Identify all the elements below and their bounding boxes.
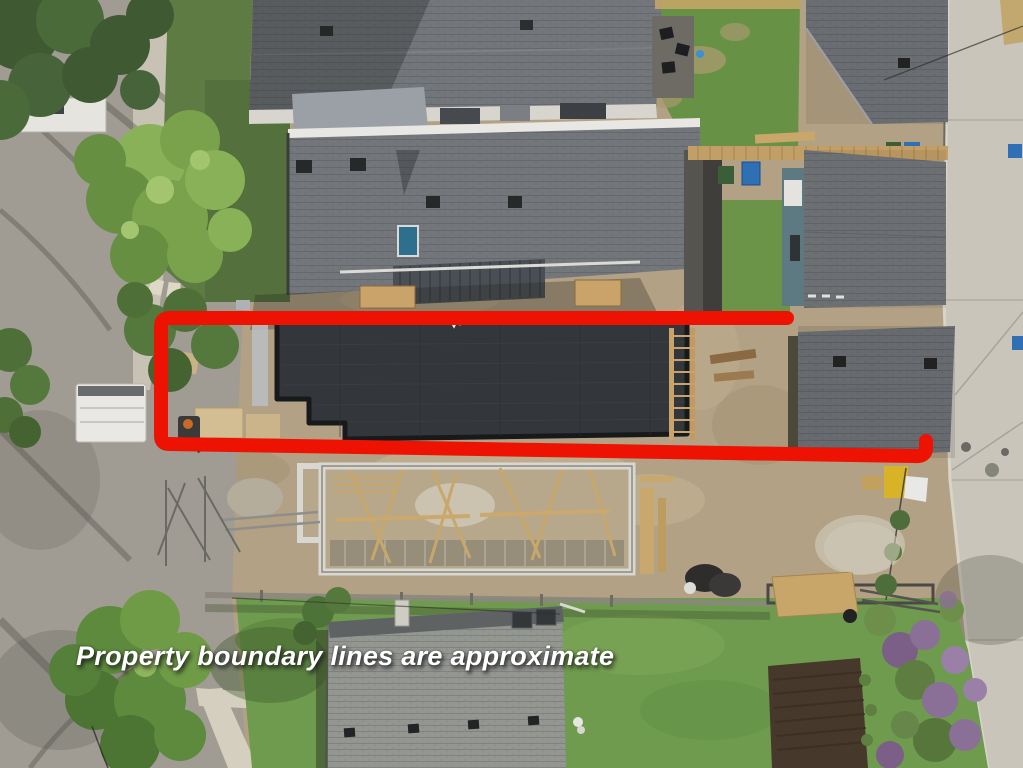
blue-bin — [742, 162, 760, 185]
house-bottom — [316, 600, 585, 768]
grass-strip-mid — [718, 200, 790, 315]
skylight — [398, 226, 418, 256]
driveway-strip — [684, 150, 722, 312]
house-top-right — [806, 0, 948, 124]
blue-bin-4 — [1012, 336, 1023, 350]
plywood-1 — [195, 408, 243, 438]
white-truck — [76, 384, 146, 442]
subject-building — [277, 318, 687, 439]
aerial-property-photo: Property boundary lines are approximate — [0, 0, 1023, 768]
rooftop-unit-1 — [512, 612, 532, 628]
house-top-left — [249, 0, 662, 131]
rooftop-unit-2 — [536, 609, 556, 625]
chimney — [395, 600, 409, 626]
fence-top-yard — [655, 0, 800, 9]
blue-bin-3 — [1008, 144, 1022, 158]
garden-plot — [768, 658, 877, 768]
gravel-pile — [227, 478, 283, 518]
icf-blocks — [252, 318, 268, 406]
house-bottom-shadow — [316, 630, 328, 768]
aerial-scene — [0, 0, 1023, 768]
blue-ball — [696, 50, 704, 58]
stair-landing-2 — [575, 280, 621, 306]
person — [573, 717, 583, 727]
green-bin — [718, 166, 734, 184]
house-right-upper — [782, 150, 946, 308]
porch-tarp — [292, 87, 428, 131]
plywood-2 — [246, 414, 280, 438]
stair-landing-1 — [360, 286, 415, 308]
fence-top-right — [1000, 0, 1023, 45]
house-mid-large — [250, 118, 700, 330]
